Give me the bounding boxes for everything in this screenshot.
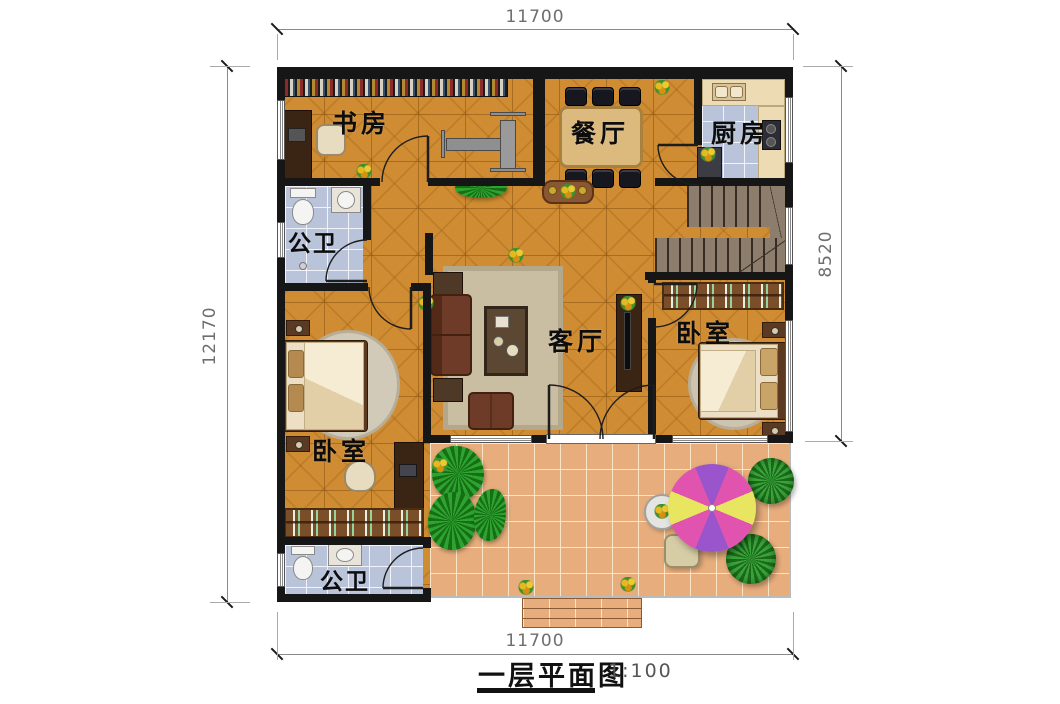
room-label-living: 客厅	[548, 322, 606, 358]
room-label-bath-bottom: 公卫	[320, 562, 370, 596]
dim-extension	[805, 441, 853, 442]
room-label-study: 书房	[332, 104, 390, 140]
floor-plan-canvas: 书房 餐厅 厨房 公卫 客厅 卧室 卧室 公卫 11700 11700 1217…	[0, 0, 1060, 704]
room-label-dining: 餐厅	[571, 114, 629, 150]
dim-label-top: 11700	[500, 7, 570, 27]
title-underline	[477, 688, 595, 693]
dim-extension	[277, 612, 278, 660]
dim-extension	[793, 612, 794, 660]
room-label-bedroom-left: 卧室	[312, 432, 370, 468]
room-label-kitchen: 厨房	[711, 114, 769, 150]
dim-label-right: 8520	[816, 219, 836, 289]
dim-extension	[210, 602, 250, 603]
door-swing-overlay	[0, 0, 1060, 704]
dim-label-left: 12170	[200, 301, 220, 371]
dim-extension	[803, 66, 853, 67]
room-label-bedroom-right: 卧室	[676, 314, 734, 350]
dim-line-top	[277, 29, 794, 30]
room-label-bath-top: 公卫	[288, 224, 338, 258]
dim-line-left	[227, 66, 228, 602]
dim-label-bottom: 11700	[500, 631, 570, 651]
dim-line-right	[841, 66, 842, 441]
dim-extension	[277, 34, 278, 60]
dim-extension	[210, 66, 250, 67]
drawing-scale: 1:100	[608, 660, 673, 682]
dim-extension	[793, 34, 794, 60]
